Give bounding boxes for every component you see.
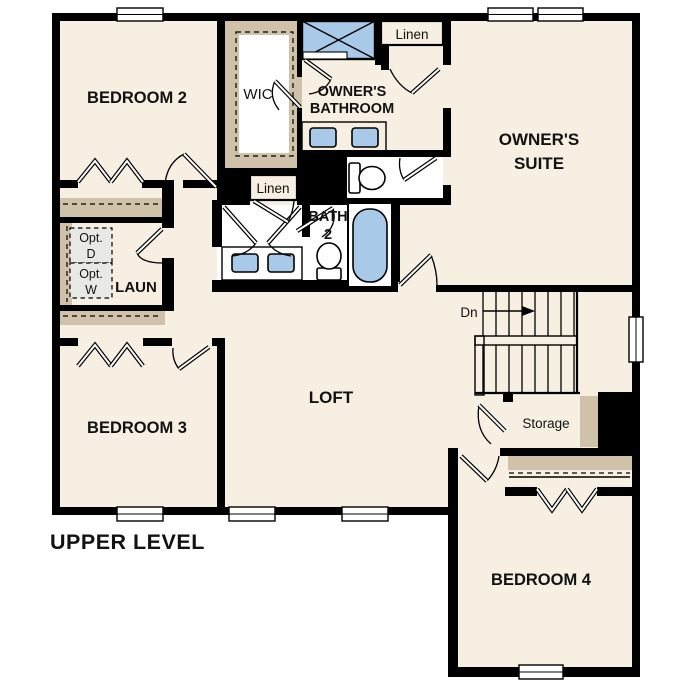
sink-icon <box>232 254 258 272</box>
shower-icon <box>302 21 375 59</box>
bedroom2-closet-shelf <box>60 198 162 217</box>
label-owners-suite-1: OWNER'S <box>499 130 580 149</box>
label-bedroom-3: BEDROOM 3 <box>87 419 187 437</box>
label-owners-suite-2: SUITE <box>514 154 564 173</box>
label-bath2-2: 2 <box>324 227 332 243</box>
label-opt-d-2: D <box>86 247 95 261</box>
label-storage: Storage <box>522 416 569 431</box>
window <box>629 317 643 362</box>
label-owners-bathroom-1: OWNER'S <box>318 84 387 100</box>
window <box>488 8 533 21</box>
sink-icon <box>352 128 378 147</box>
label-linen-hall: Linen <box>256 181 289 196</box>
window <box>519 665 563 679</box>
label-down: Dn <box>460 305 477 320</box>
window <box>117 8 163 21</box>
label-opt-d-1: Opt. <box>79 231 103 245</box>
window <box>117 507 163 521</box>
label-bedroom-2: BEDROOM 2 <box>87 89 187 107</box>
bedroom3-closet-shelf <box>60 311 165 325</box>
bathtub-icon <box>348 203 392 287</box>
floor-plan: BEDROOM 2 WIC OWNER'S BATHROOM Linen OWN… <box>0 0 687 687</box>
label-owners-bathroom-2: BATHROOM <box>310 101 394 117</box>
label-linen-top: Linen <box>395 27 428 42</box>
label-loft: LOFT <box>309 388 354 407</box>
storage-shelf <box>580 396 598 447</box>
label-bedroom-4: BEDROOM 4 <box>491 571 592 589</box>
label-bath2-1: BATH <box>308 209 347 225</box>
window <box>229 507 275 521</box>
label-opt-w-1: Opt. <box>79 267 103 281</box>
toilet-icon <box>317 243 341 280</box>
sink-icon <box>310 128 336 147</box>
bedroom4-floor-area <box>452 452 636 672</box>
page-title: UPPER LEVEL <box>50 530 205 554</box>
bedroom4-closet-shelf <box>508 456 632 470</box>
label-opt-w-2: W <box>85 283 97 297</box>
window <box>342 507 388 521</box>
window <box>538 8 583 21</box>
label-laundry: LAUN <box>115 279 157 296</box>
label-wic: WIC <box>243 86 272 103</box>
floor-plan-drawing: BEDROOM 2 WIC OWNER'S BATHROOM Linen OWN… <box>0 0 687 687</box>
sink-icon <box>268 254 294 272</box>
